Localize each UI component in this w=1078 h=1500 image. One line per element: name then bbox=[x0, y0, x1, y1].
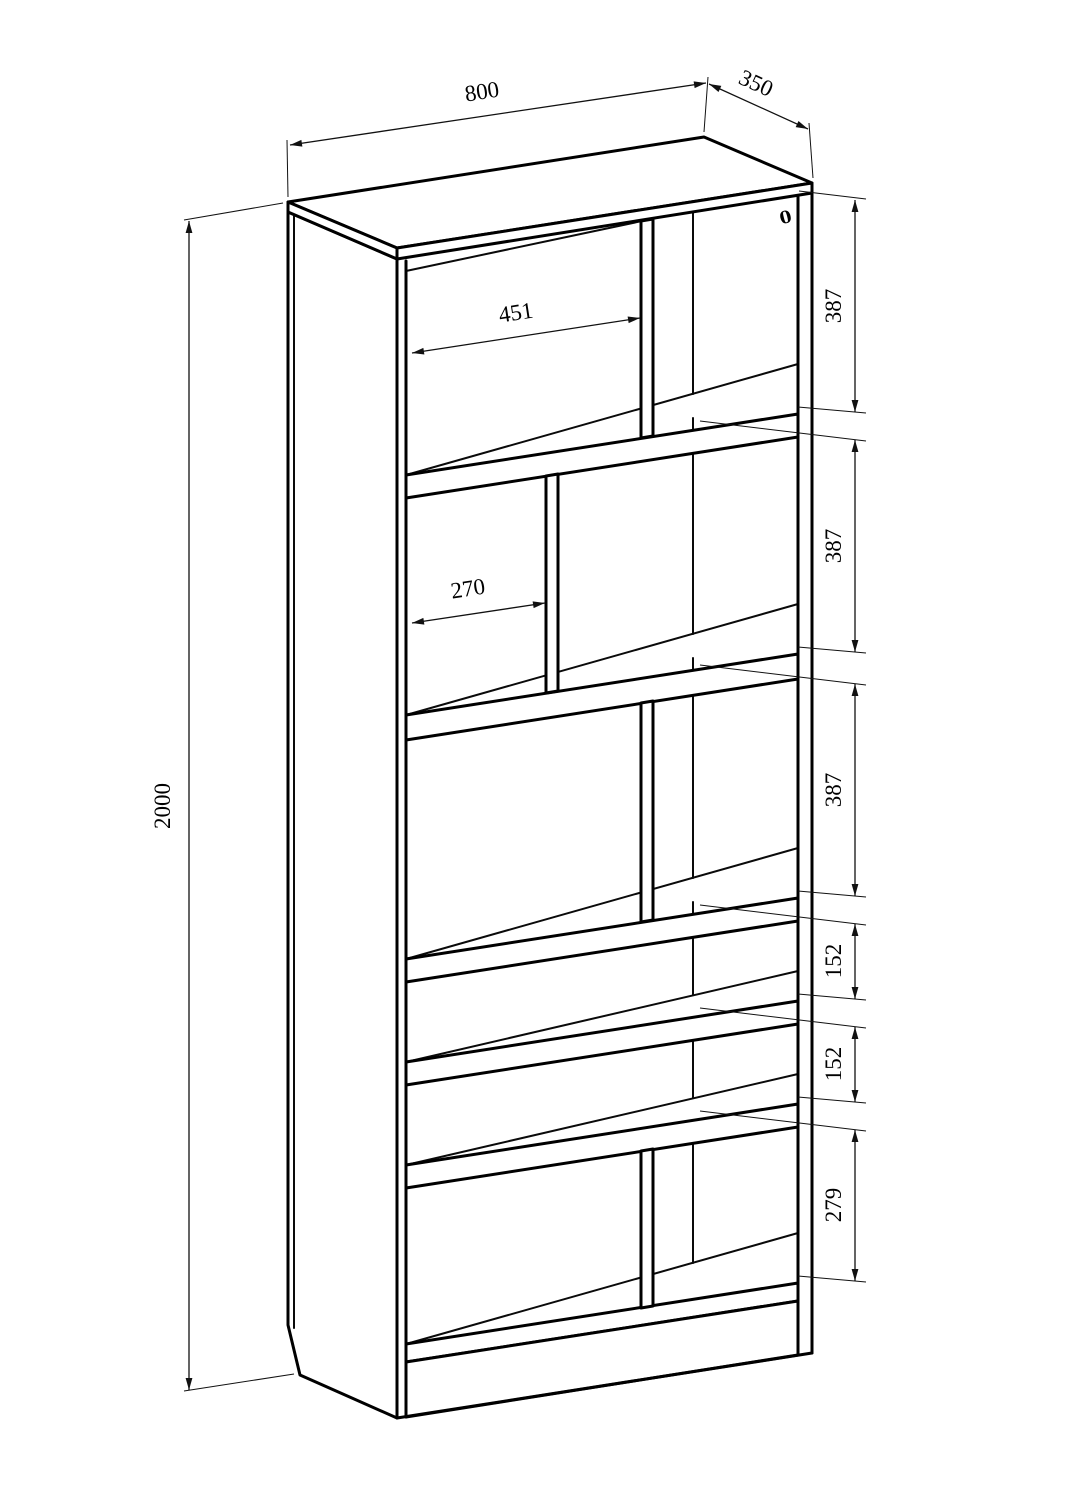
divider bbox=[546, 474, 558, 693]
dim-section1-width-label: 451 bbox=[497, 298, 535, 328]
dim-section2-width-label: 270 bbox=[449, 574, 487, 604]
divider bbox=[641, 1149, 653, 1308]
dim-depth-label: 350 bbox=[735, 65, 777, 102]
divider bbox=[641, 701, 653, 922]
dim-inner-width-line bbox=[412, 603, 545, 623]
left-side-panel bbox=[288, 212, 397, 1418]
shelf-surface-edges bbox=[406, 364, 798, 1344]
drawing-canvas: 0 bbox=[0, 0, 1078, 1500]
dim-right-section-5-label: 152 bbox=[821, 1047, 846, 1082]
bookshelf-dimension-drawing: 0 bbox=[0, 0, 1078, 1500]
dim-right-section-6-label: 279 bbox=[821, 1188, 846, 1223]
dim-right-section-3-label: 387 bbox=[821, 773, 846, 808]
shelf bbox=[406, 1001, 798, 1085]
shelves bbox=[406, 414, 798, 1417]
shelf bbox=[406, 898, 798, 982]
dimension-annotations: 800 350 2000 451 270 387 387 387 152 152… bbox=[150, 65, 866, 1391]
dim-right-section-4-label: 152 bbox=[821, 944, 846, 979]
hole-marker: 0 bbox=[778, 207, 794, 229]
dim-right-section-2-label: 387 bbox=[821, 529, 846, 564]
divider bbox=[641, 219, 653, 438]
shelf bbox=[406, 414, 798, 498]
carcass bbox=[288, 137, 812, 1418]
dim-width-label: 800 bbox=[463, 77, 501, 107]
shelf bbox=[406, 1104, 798, 1188]
dim-height-label: 2000 bbox=[150, 783, 175, 829]
shelf bbox=[406, 654, 798, 740]
dim-right-section-1-label: 387 bbox=[821, 289, 846, 324]
